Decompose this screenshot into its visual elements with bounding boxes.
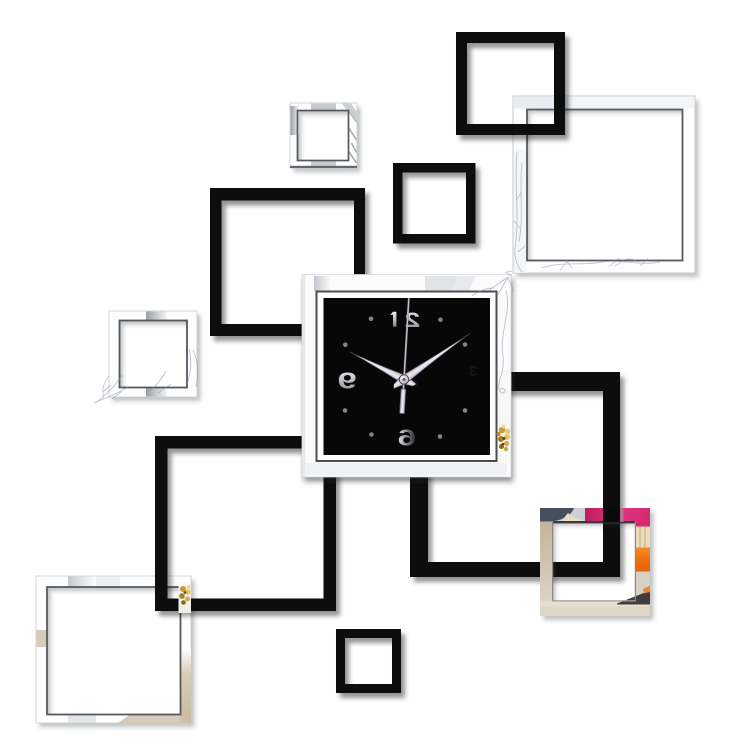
svg-text:9: 9 <box>338 368 357 394</box>
svg-text:3: 3 <box>469 363 477 380</box>
svg-text:6: 6 <box>398 425 417 451</box>
